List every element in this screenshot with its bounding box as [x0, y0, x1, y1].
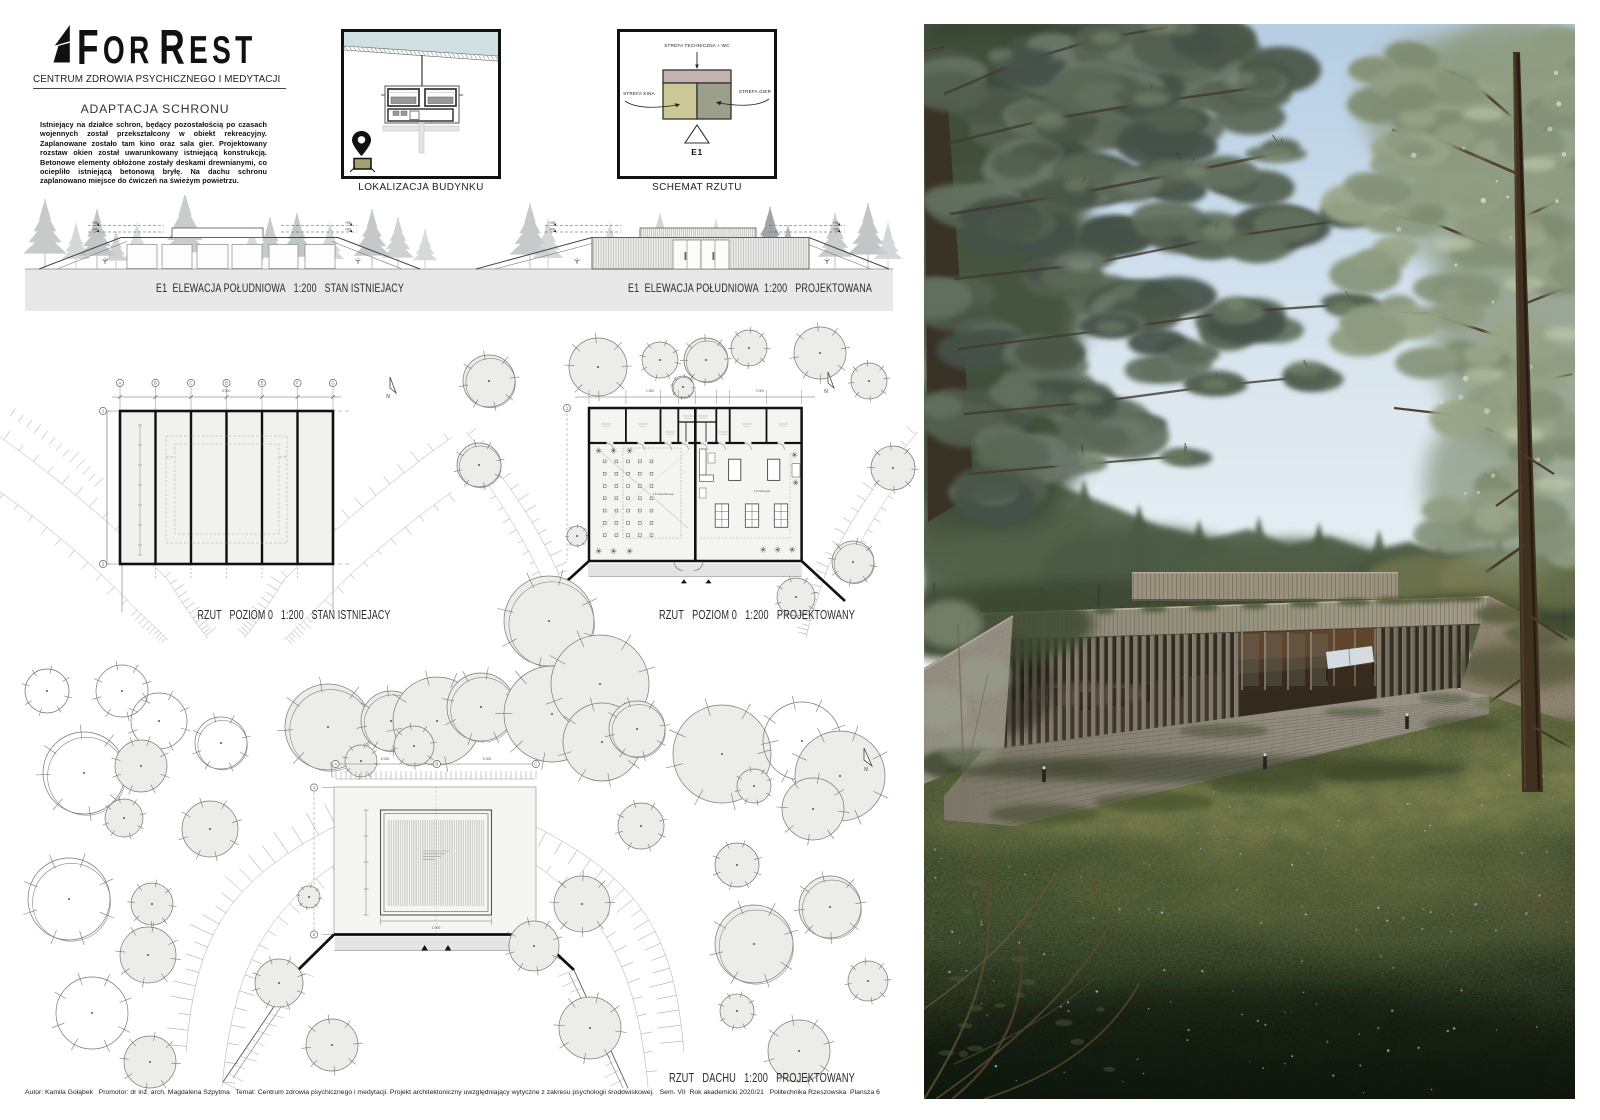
svg-text:1 000: 1 000	[646, 389, 654, 393]
svg-text:1 000: 1 000	[432, 926, 441, 930]
svg-text:STREFA GIER: STREFA GIER	[739, 89, 772, 94]
svg-text:5 000: 5 000	[381, 757, 390, 761]
svg-text:1.6 Sala gier: 1.6 Sala gier	[754, 489, 771, 493]
svg-text:N: N	[864, 767, 868, 773]
svg-text:D: D	[225, 381, 228, 386]
svg-text:C: C	[189, 381, 192, 386]
svg-text:N: N	[386, 394, 390, 400]
svg-text:+05: +05	[92, 221, 98, 225]
svg-text:5 000: 5 000	[483, 757, 492, 761]
svg-text:2 000: 2 000	[756, 389, 764, 393]
svg-text:B: B	[435, 762, 438, 767]
svg-text:+05: +05	[345, 221, 351, 225]
svg-text:+05: +05	[833, 221, 839, 225]
svg-text:F: F	[296, 381, 299, 386]
svg-text:STREFA KINA: STREFA KINA	[623, 91, 656, 96]
svg-text:N: N	[824, 389, 828, 395]
svg-text:RZUT POZIOM 0 1:200 PROJ: RZUT POZIOM 0 1:200 PROJEKTOWANY	[659, 608, 855, 622]
svg-text:E1: E1	[691, 147, 702, 157]
svg-text:C: C	[534, 762, 537, 767]
svg-text:A: A	[119, 381, 122, 386]
svg-text:+00: +00	[92, 228, 98, 232]
svg-text:B: B	[154, 381, 157, 386]
svg-text:E: E	[261, 381, 264, 386]
svg-text:E1 ELEWACJA POŁUDNIOWA 1:200: E1 ELEWACJA POŁUDNIOWA 1:200 PROJEKTOWAN…	[628, 283, 872, 295]
svg-text:+00: +00	[345, 228, 351, 232]
svg-text:5 000: 5 000	[222, 389, 230, 393]
svg-text:1.5 Sala kinowa: 1.5 Sala kinowa	[652, 492, 674, 496]
svg-text:E1 ELEWACJA POŁUDNIOWA 1:20: E1 ELEWACJA POŁUDNIOWA 1:200 STAN ISTNIE…	[156, 283, 404, 295]
svg-text:+00: +00	[833, 228, 839, 232]
svg-text:RZUT DACHU 1:200 PROJEKT: RZUT DACHU 1:200 PROJEKTOWANY	[669, 1071, 855, 1085]
svg-text:G: G	[331, 381, 334, 386]
svg-text:+00: +00	[549, 228, 555, 232]
svg-text:+05: +05	[549, 221, 555, 225]
svg-text:A: A	[334, 762, 337, 767]
svg-text:STREFA TECHNICZNA + WC: STREFA TECHNICZNA + WC	[664, 43, 730, 48]
svg-text:RZUT POZIOM 0 1:200 STAN: RZUT POZIOM 0 1:200 STAN ISTNIEJACY	[198, 608, 391, 622]
